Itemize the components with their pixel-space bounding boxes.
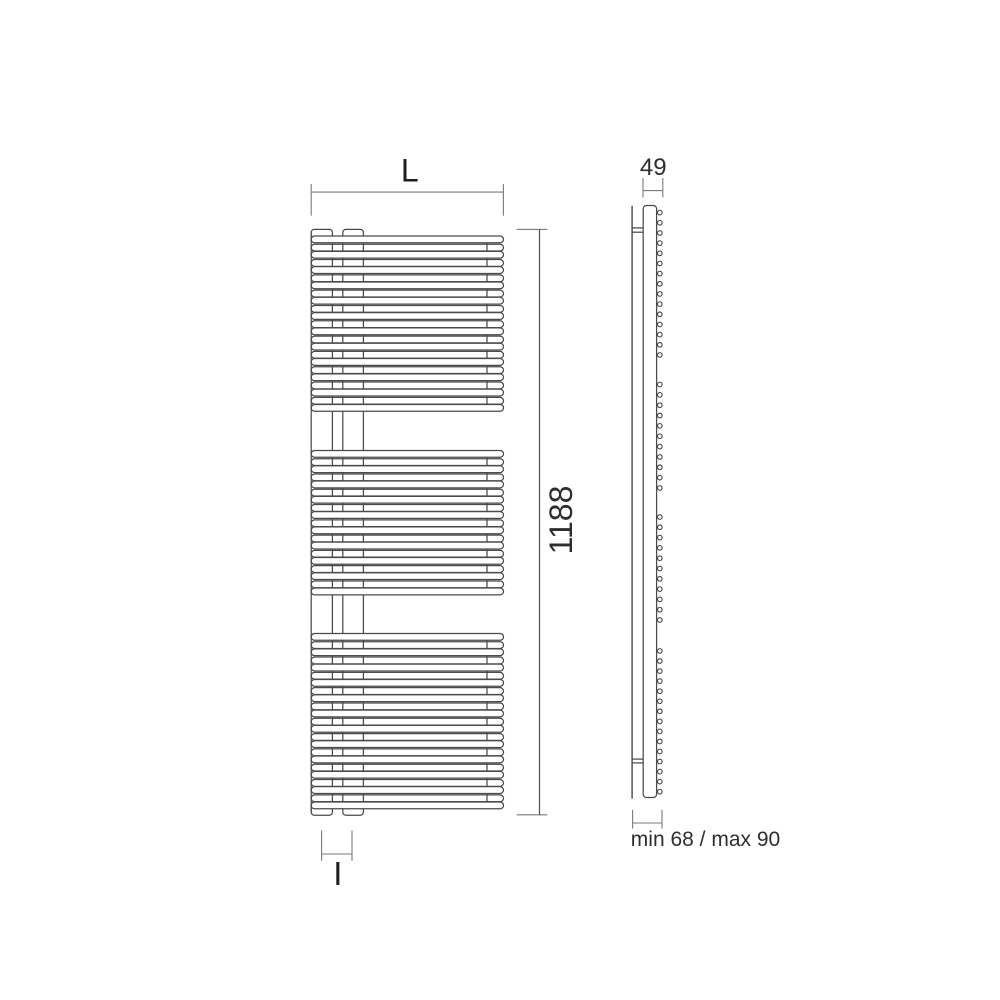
svg-text:L: L bbox=[401, 153, 419, 189]
svg-text:1188: 1188 bbox=[543, 486, 579, 555]
svg-text:49: 49 bbox=[640, 154, 667, 181]
svg-text:I: I bbox=[333, 855, 342, 892]
svg-text:min 68 / max 90: min 68 / max 90 bbox=[631, 828, 780, 851]
